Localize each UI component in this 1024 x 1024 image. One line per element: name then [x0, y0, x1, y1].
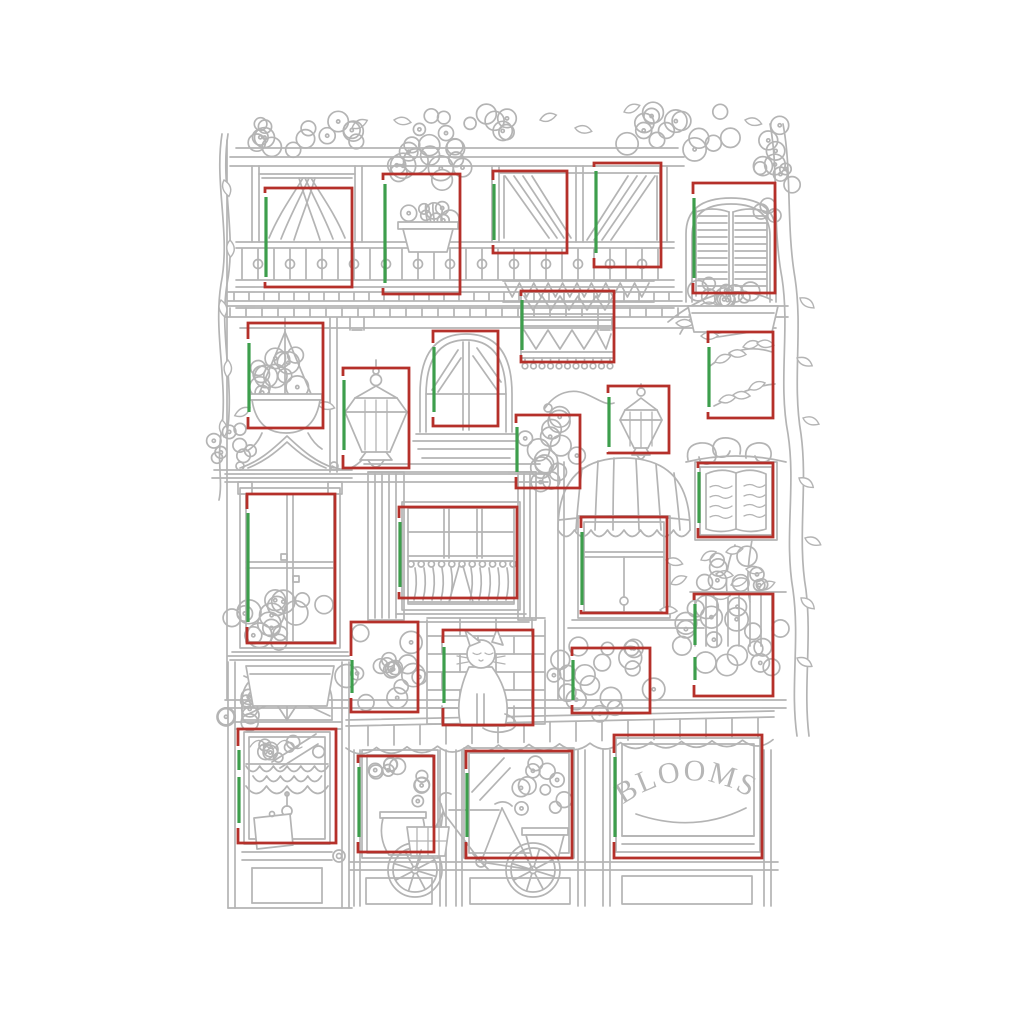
red-box-balcony-door-left — [265, 188, 352, 287]
illustration-canvas: BLOOMS — [0, 0, 1024, 1024]
screenshot-root: BLOOMS — [0, 0, 1024, 1024]
blooms-sign-group: BLOOMS — [609, 754, 763, 823]
sign-underline-arc — [636, 808, 746, 823]
blooms-sign-text: BLOOMS — [609, 754, 763, 810]
red-box-flower-box-middle — [572, 648, 650, 713]
storefront-line-art: BLOOMS — [207, 102, 823, 908]
cat-figure — [459, 667, 507, 726]
